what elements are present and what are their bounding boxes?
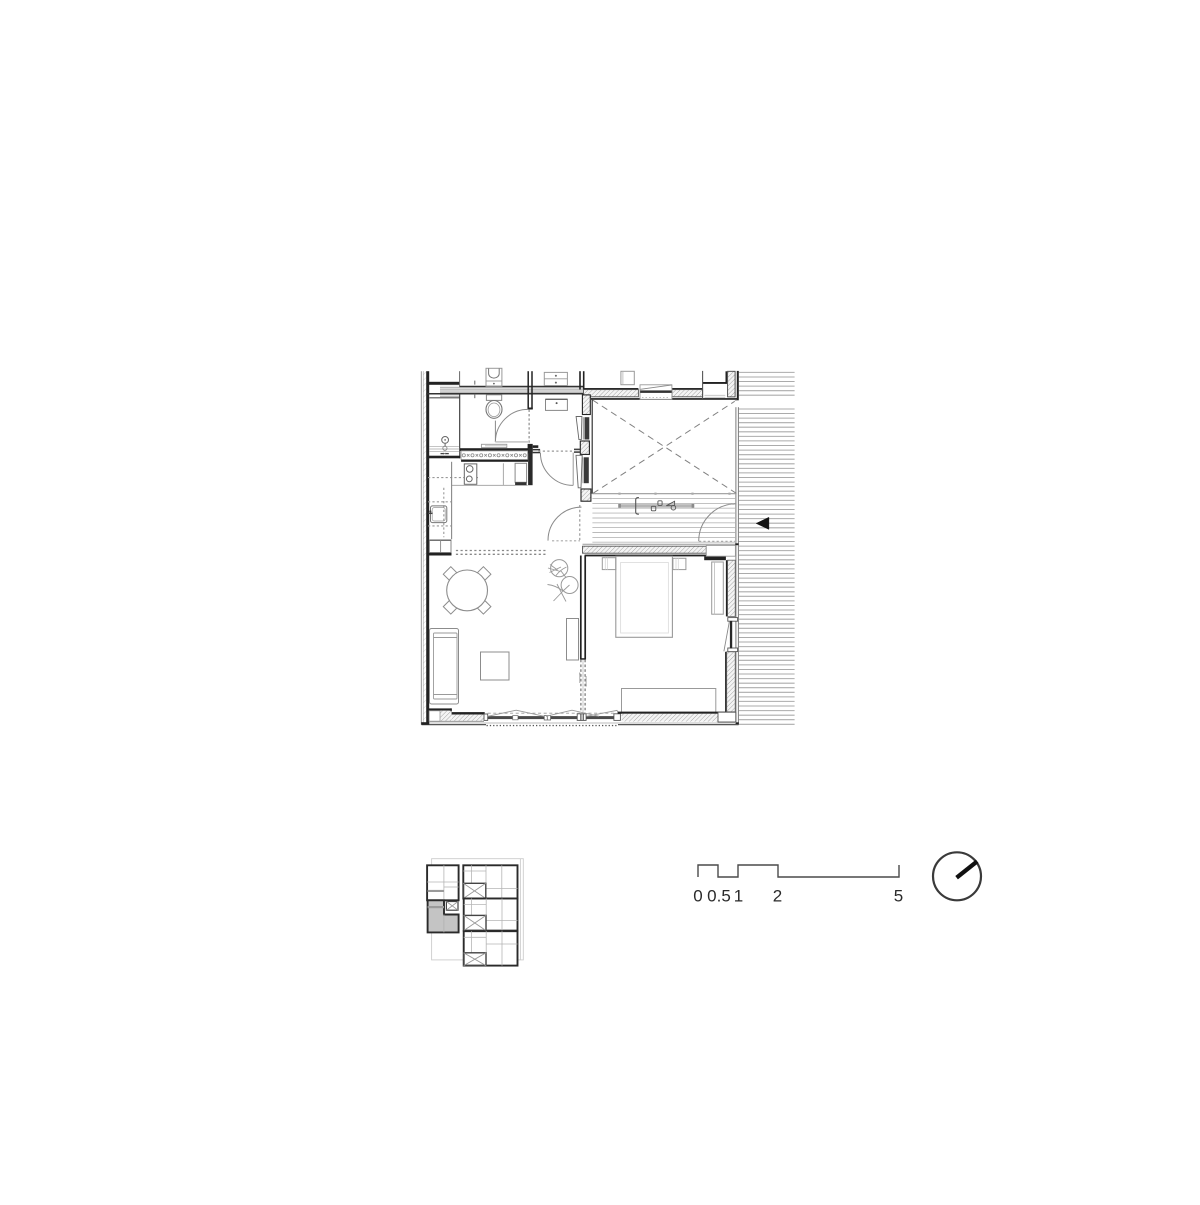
svg-text:2: 2: [773, 887, 782, 906]
svg-text:5: 5: [894, 887, 903, 906]
svg-text:0.5: 0.5: [707, 887, 731, 906]
svg-text:1: 1: [734, 887, 743, 906]
svg-text:0: 0: [693, 887, 702, 906]
